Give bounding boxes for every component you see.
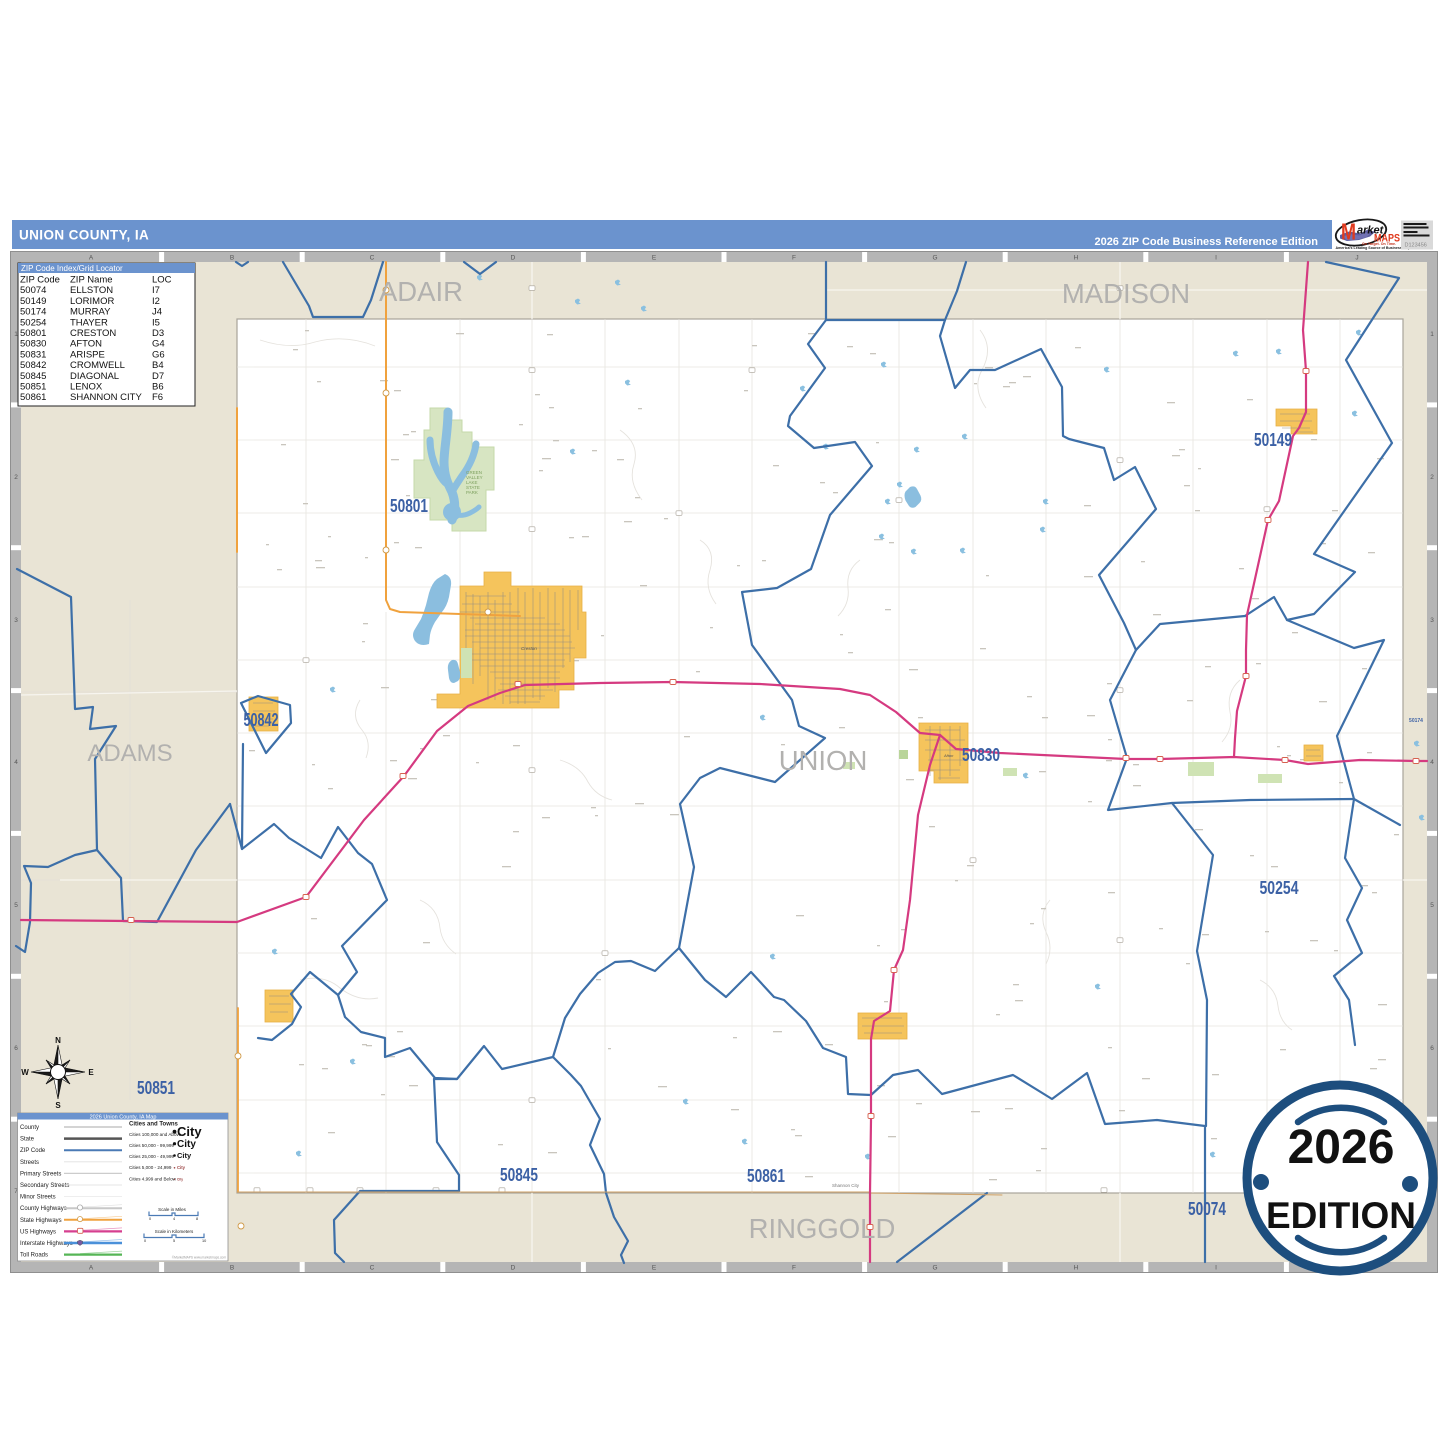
svg-text:ARISPE: ARISPE [70,349,105,360]
svg-text:50845: 50845 [20,371,46,382]
svg-text:50851: 50851 [137,1078,175,1098]
svg-text:Primary Streets: Primary Streets [20,1171,61,1177]
svg-text:ZIP Code: ZIP Code [20,275,60,286]
svg-text:Scale in Miles: Scale in Miles [158,1207,187,1212]
svg-text:I: I [1215,255,1217,262]
svg-text:Cities 5,000 - 24,999: Cities 5,000 - 24,999 [129,1165,172,1170]
svg-text:50254: 50254 [1260,878,1299,898]
svg-text:50851: 50851 [20,382,46,393]
svg-text:6: 6 [14,1045,18,1052]
svg-text:Afton: Afton [943,753,954,758]
svg-text:N: N [55,1036,61,1045]
svg-text:D3: D3 [152,328,164,339]
svg-text:DIAGONAL: DIAGONAL [70,371,119,382]
svg-text:Streets: Streets [20,1160,39,1166]
svg-text:C: C [370,1265,375,1272]
svg-text:Secondary Streets: Secondary Streets [20,1183,69,1189]
svg-text:ZIP Code Index/Grid Locator: ZIP Code Index/Grid Locator [21,264,123,273]
svg-text:E: E [88,1068,94,1077]
svg-text:50149: 50149 [1254,430,1292,450]
svg-text:MURRAY: MURRAY [70,307,111,318]
svg-text:Toll Roads: Toll Roads [20,1253,48,1259]
svg-text:50254: 50254 [20,317,46,328]
svg-text:I: I [1215,1265,1217,1272]
svg-text:UNION: UNION [779,745,868,776]
svg-text:ELLSTON: ELLSTON [70,285,113,296]
svg-text:City: City [177,1124,202,1139]
svg-text:2: 2 [1430,474,1434,481]
svg-text:B6: B6 [152,382,164,393]
svg-text:PARK: PARK [466,490,478,495]
svg-text:Cities and Towns: Cities and Towns [129,1122,179,1128]
svg-text:Cities 50,000 - 99,999: Cities 50,000 - 99,999 [129,1143,174,1148]
svg-text:SHANNON CITY: SHANNON CITY [70,392,142,403]
svg-text:5: 5 [173,1239,175,1243]
svg-text:LENOX: LENOX [70,382,103,393]
svg-text:F6: F6 [152,392,163,403]
svg-text:I5: I5 [152,317,160,328]
svg-text:M: M [1341,219,1356,245]
svg-text:City: City [177,1139,196,1150]
svg-text:City: City [177,1165,186,1170]
svg-text:4: 4 [1430,759,1434,766]
svg-text:J4: J4 [152,307,162,318]
svg-text:ADAIR: ADAIR [379,276,463,307]
svg-text:W: W [21,1068,29,1077]
svg-text:D: D [511,255,516,262]
svg-text:Shannon City: Shannon City [832,1183,860,1188]
svg-text:Cities 25,000 - 49,999: Cities 25,000 - 49,999 [129,1154,174,1159]
svg-text:50830: 50830 [20,339,46,350]
svg-text:50861: 50861 [20,392,46,403]
svg-text:State Highways: State Highways [20,1218,62,1224]
svg-text:A: A [89,255,94,262]
svg-text:D7: D7 [152,371,164,382]
svg-text:2026: 2026 [1288,1121,1395,1174]
svg-text:F: F [792,255,796,262]
svg-text:50861: 50861 [747,1166,785,1186]
svg-text:G4: G4 [152,339,165,350]
svg-text:0: 0 [149,1217,151,1221]
svg-text:1: 1 [1430,331,1434,338]
svg-text:50842: 50842 [20,360,46,371]
svg-text:America's Leading Source of B: America's Leading Source of Business Map… [1336,246,1413,250]
svg-text:50845: 50845 [500,1165,538,1185]
svg-text:H: H [1074,255,1079,262]
svg-text:ADAMS: ADAMS [87,740,172,767]
svg-text:MADISON: MADISON [1062,278,1190,309]
svg-text:4: 4 [173,1217,175,1221]
svg-text:50842: 50842 [244,710,279,730]
svg-text:LOC: LOC [152,275,172,286]
svg-text:G: G [932,255,937,262]
svg-text:2026 Union County, IA Map: 2026 Union County, IA Map [90,1114,157,1120]
svg-text:County: County [20,1125,39,1131]
svg-text:AFTON: AFTON [70,339,102,350]
svg-text:C: C [370,255,375,262]
svg-text:50801: 50801 [20,328,46,339]
svg-text:J: J [1355,255,1358,262]
svg-text:3: 3 [14,617,18,624]
svg-text:50801: 50801 [390,496,428,516]
svg-text:ZIP Name: ZIP Name [70,275,113,286]
svg-text:3: 3 [1430,617,1434,624]
svg-text:LORIMOR: LORIMOR [70,296,114,307]
svg-text:I2: I2 [152,296,160,307]
svg-text:State: State [20,1137,35,1143]
svg-text:©MarketMAPS www.marketmaps.com: ©MarketMAPS www.marketmaps.com [172,1256,226,1260]
svg-text:Cities 4,999 and Below: Cities 4,999 and Below [129,1177,177,1182]
svg-text:50830: 50830 [962,745,1000,765]
svg-text:B: B [230,1265,234,1272]
svg-text:6: 6 [1430,1045,1434,1052]
svg-text:Scale in Kilometers: Scale in Kilometers [155,1229,194,1234]
svg-text:5: 5 [14,902,18,909]
svg-text:50074: 50074 [1188,1199,1226,1219]
svg-text:E: E [652,1265,657,1272]
svg-text:CRESTON: CRESTON [70,328,116,339]
svg-text:G6: G6 [152,349,165,360]
svg-text:THAYER: THAYER [70,317,108,328]
svg-text:County Highways: County Highways [20,1206,67,1212]
svg-text:50831: 50831 [20,349,46,360]
svg-text:50174: 50174 [20,307,46,318]
svg-text:City: City [177,1151,192,1160]
svg-text:F: F [792,1265,796,1272]
svg-text:50174: 50174 [1409,718,1423,724]
svg-text:Creston: Creston [521,646,537,651]
svg-text:RINGGOLD: RINGGOLD [749,1213,896,1244]
svg-text:10: 10 [202,1239,206,1243]
svg-text:4: 4 [14,759,18,766]
svg-text:EDITION: EDITION [1266,1195,1416,1236]
svg-text:H: H [1074,1265,1079,1272]
svg-text:D: D [511,1265,516,1272]
svg-text:G: G [932,1265,937,1272]
svg-text:5: 5 [1430,902,1434,909]
svg-text:E: E [652,255,657,262]
svg-text:50074: 50074 [20,285,46,296]
svg-text:B: B [230,255,234,262]
svg-text:A: A [89,1265,94,1272]
svg-text:50149: 50149 [20,296,46,307]
svg-text:0: 0 [144,1239,146,1243]
svg-text:US Highways: US Highways [20,1229,56,1235]
svg-text:2: 2 [14,474,18,481]
svg-text:B4: B4 [152,360,164,371]
svg-text:2026 ZIP Code Business Referen: 2026 ZIP Code Business Reference Edition [1094,236,1318,248]
svg-text:ZIP Code: ZIP Code [20,1148,46,1154]
svg-text:City: City [177,1178,183,1182]
svg-text:I7: I7 [152,285,160,296]
svg-text:S: S [55,1101,61,1110]
svg-text:CROMWELL: CROMWELL [70,360,125,371]
svg-text:Minor Streets: Minor Streets [20,1195,56,1201]
svg-text:D123456: D123456 [1405,243,1427,249]
svg-text:8: 8 [196,1217,198,1221]
svg-text:UNION COUNTY, IA: UNION COUNTY, IA [19,228,149,243]
